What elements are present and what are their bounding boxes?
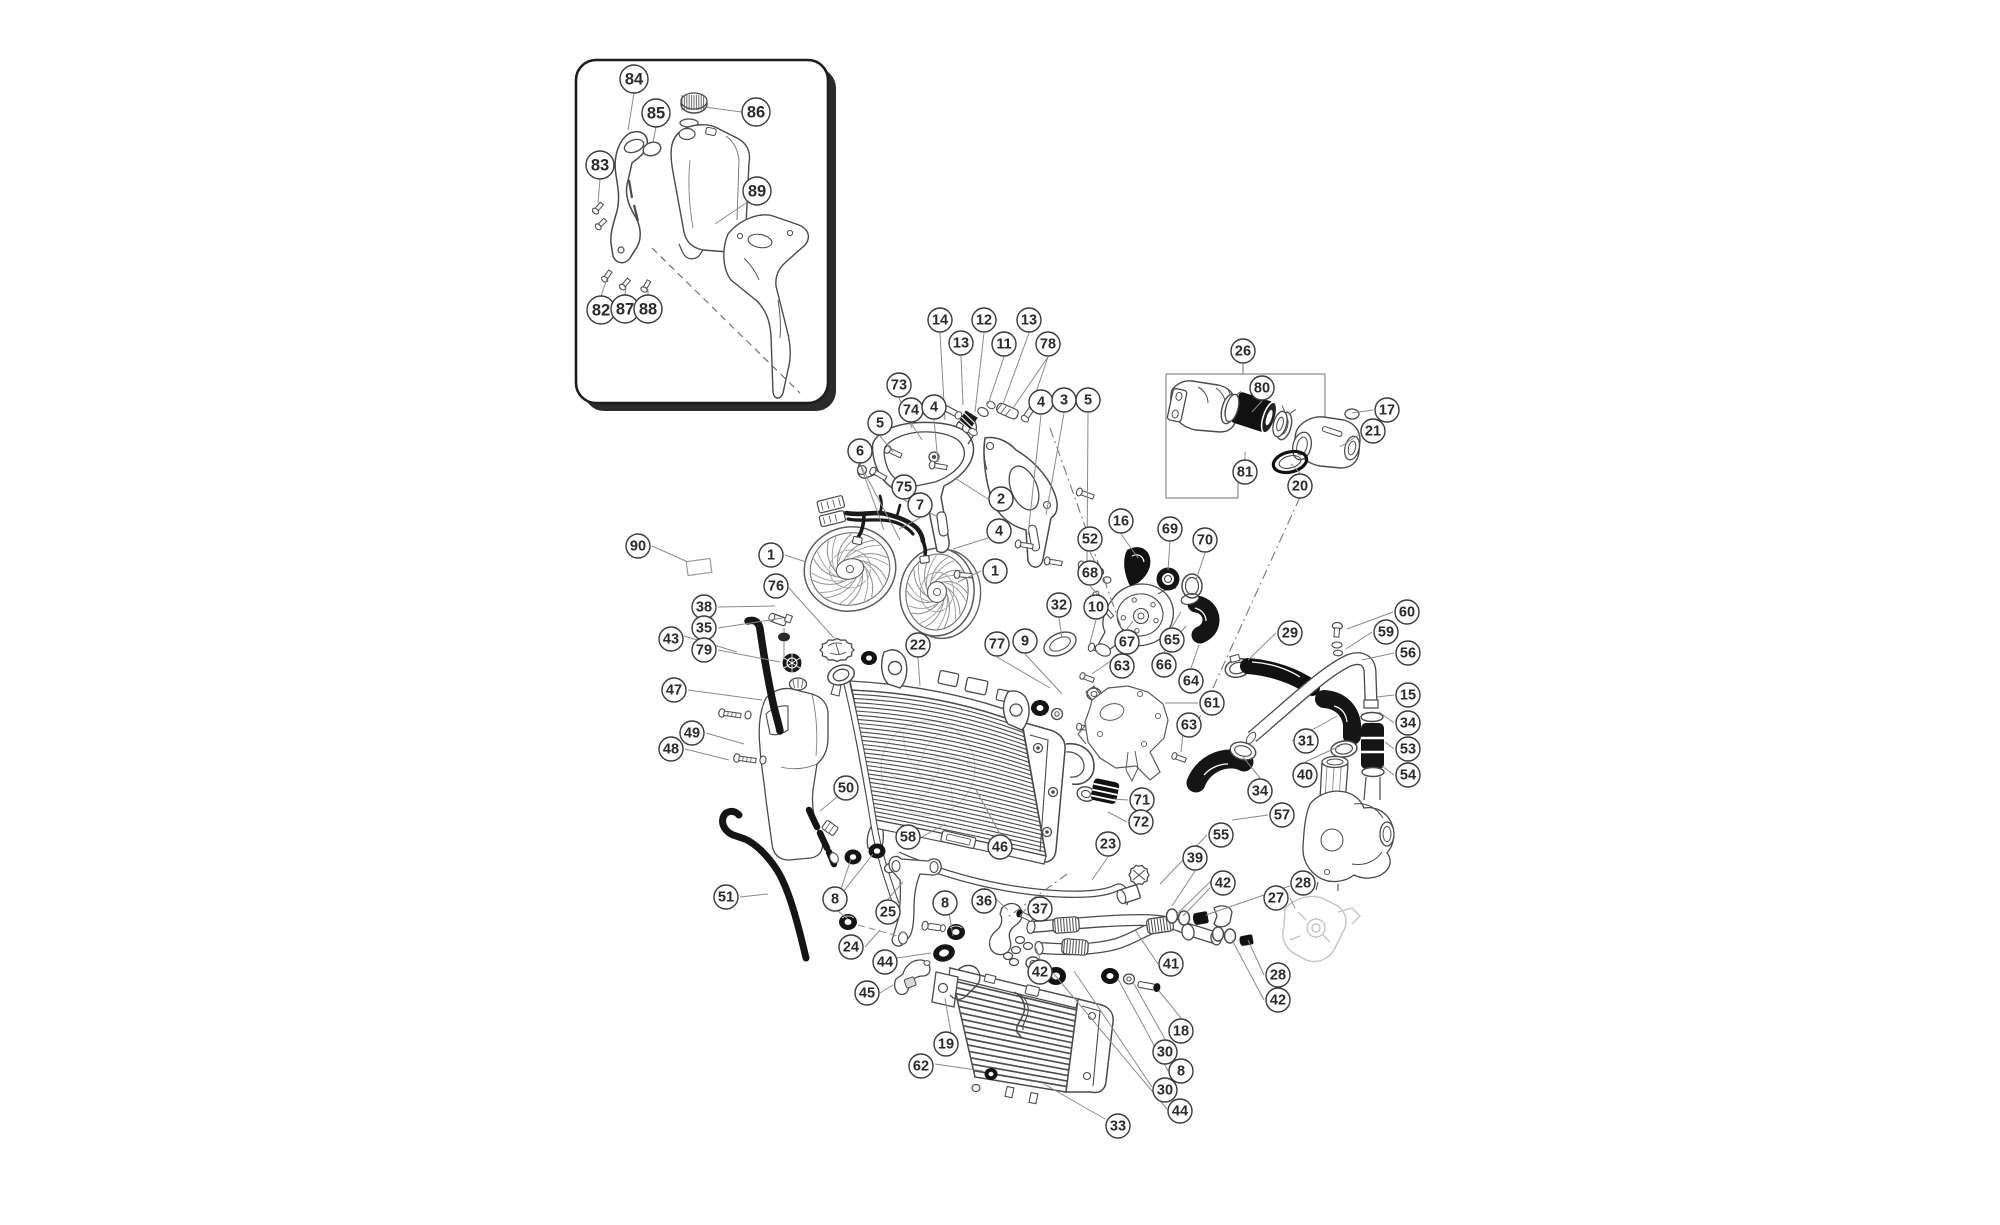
svg-text:29: 29 (1282, 626, 1298, 642)
svg-text:22: 22 (910, 638, 926, 654)
svg-text:58: 58 (900, 830, 916, 846)
svg-text:32: 32 (1051, 598, 1067, 614)
svg-text:15: 15 (1400, 688, 1416, 704)
svg-text:50: 50 (838, 781, 854, 797)
svg-text:8: 8 (1177, 1064, 1185, 1080)
svg-text:64: 64 (1183, 674, 1199, 690)
svg-text:2: 2 (997, 492, 1005, 508)
svg-text:65: 65 (1164, 633, 1180, 649)
svg-text:6: 6 (856, 444, 864, 460)
svg-text:59: 59 (1378, 625, 1394, 641)
svg-text:60: 60 (1399, 605, 1415, 621)
svg-text:81: 81 (1237, 465, 1253, 481)
svg-text:56: 56 (1400, 646, 1416, 662)
svg-text:4: 4 (930, 400, 938, 416)
svg-text:51: 51 (718, 890, 734, 906)
svg-text:19: 19 (938, 1037, 954, 1053)
svg-text:5: 5 (876, 416, 884, 432)
svg-text:40: 40 (1297, 768, 1313, 784)
svg-text:73: 73 (891, 378, 907, 394)
svg-text:25: 25 (880, 905, 896, 921)
svg-text:27: 27 (1268, 891, 1284, 907)
svg-text:77: 77 (989, 637, 1005, 653)
svg-text:55: 55 (1213, 828, 1229, 844)
svg-text:43: 43 (663, 632, 679, 648)
svg-text:1: 1 (767, 548, 775, 564)
svg-text:18: 18 (1173, 1024, 1189, 1040)
svg-text:34: 34 (1252, 784, 1268, 800)
svg-text:44: 44 (877, 955, 893, 971)
svg-text:53: 53 (1400, 742, 1416, 758)
svg-text:42: 42 (1032, 965, 1048, 981)
svg-text:24: 24 (843, 940, 859, 956)
svg-text:78: 78 (1040, 337, 1056, 353)
svg-text:5: 5 (1084, 393, 1092, 409)
svg-text:47: 47 (666, 683, 682, 699)
svg-text:71: 71 (1134, 793, 1150, 809)
svg-text:28: 28 (1270, 968, 1286, 984)
svg-text:68: 68 (1082, 566, 1098, 582)
svg-text:26: 26 (1235, 344, 1251, 360)
svg-text:44: 44 (1172, 1104, 1188, 1120)
svg-text:70: 70 (1197, 533, 1213, 549)
svg-text:42: 42 (1215, 876, 1231, 892)
svg-text:76: 76 (768, 579, 784, 595)
svg-text:38: 38 (696, 600, 712, 616)
svg-text:85: 85 (647, 105, 665, 123)
svg-text:57: 57 (1274, 808, 1290, 824)
svg-text:54: 54 (1400, 768, 1416, 784)
svg-text:10: 10 (1088, 600, 1104, 616)
svg-text:13: 13 (953, 336, 969, 352)
svg-text:14: 14 (932, 313, 948, 329)
svg-text:66: 66 (1156, 658, 1172, 674)
svg-text:72: 72 (1133, 815, 1149, 831)
svg-text:39: 39 (1187, 851, 1203, 867)
svg-text:62: 62 (913, 1059, 929, 1075)
svg-text:11: 11 (996, 337, 1011, 353)
svg-text:80: 80 (1254, 381, 1270, 397)
svg-text:33: 33 (1110, 1119, 1126, 1135)
svg-text:83: 83 (591, 157, 609, 175)
svg-text:28: 28 (1295, 876, 1311, 892)
svg-text:90: 90 (630, 539, 646, 555)
svg-text:16: 16 (1113, 514, 1129, 530)
svg-text:30: 30 (1157, 1045, 1173, 1061)
svg-text:49: 49 (684, 726, 700, 742)
svg-text:48: 48 (663, 742, 679, 758)
svg-text:36: 36 (976, 894, 992, 910)
svg-text:4: 4 (995, 524, 1003, 540)
svg-text:21: 21 (1365, 424, 1381, 440)
svg-text:79: 79 (696, 643, 712, 659)
svg-text:82: 82 (592, 302, 610, 320)
svg-text:89: 89 (748, 183, 766, 201)
svg-text:52: 52 (1082, 532, 1098, 548)
svg-text:4: 4 (1037, 395, 1045, 411)
svg-text:42: 42 (1270, 993, 1286, 1009)
svg-text:8: 8 (941, 896, 949, 912)
svg-text:13: 13 (1021, 313, 1037, 329)
svg-text:87: 87 (616, 301, 634, 319)
svg-text:86: 86 (747, 104, 765, 122)
svg-text:88: 88 (639, 301, 657, 319)
svg-text:9: 9 (1021, 634, 1029, 650)
svg-text:12: 12 (976, 313, 992, 329)
svg-text:45: 45 (859, 986, 875, 1002)
svg-text:8: 8 (831, 892, 839, 908)
svg-text:75: 75 (896, 480, 912, 496)
svg-text:74: 74 (903, 403, 919, 419)
svg-text:67: 67 (1119, 635, 1135, 651)
svg-text:69: 69 (1162, 522, 1178, 538)
svg-text:7: 7 (916, 498, 924, 514)
svg-text:41: 41 (1163, 957, 1179, 973)
svg-text:37: 37 (1032, 902, 1048, 918)
svg-text:30: 30 (1157, 1083, 1173, 1099)
svg-text:61: 61 (1204, 696, 1220, 712)
svg-text:34: 34 (1400, 716, 1416, 732)
svg-text:35: 35 (696, 621, 712, 637)
svg-text:84: 84 (625, 71, 644, 89)
svg-text:3: 3 (1060, 393, 1068, 409)
svg-text:20: 20 (1292, 479, 1308, 495)
svg-text:17: 17 (1379, 403, 1395, 419)
svg-text:63: 63 (1114, 659, 1130, 675)
svg-text:46: 46 (992, 840, 1008, 856)
svg-text:63: 63 (1181, 718, 1197, 734)
svg-text:1: 1 (991, 564, 999, 580)
svg-text:31: 31 (1298, 734, 1314, 750)
svg-text:23: 23 (1100, 837, 1116, 853)
